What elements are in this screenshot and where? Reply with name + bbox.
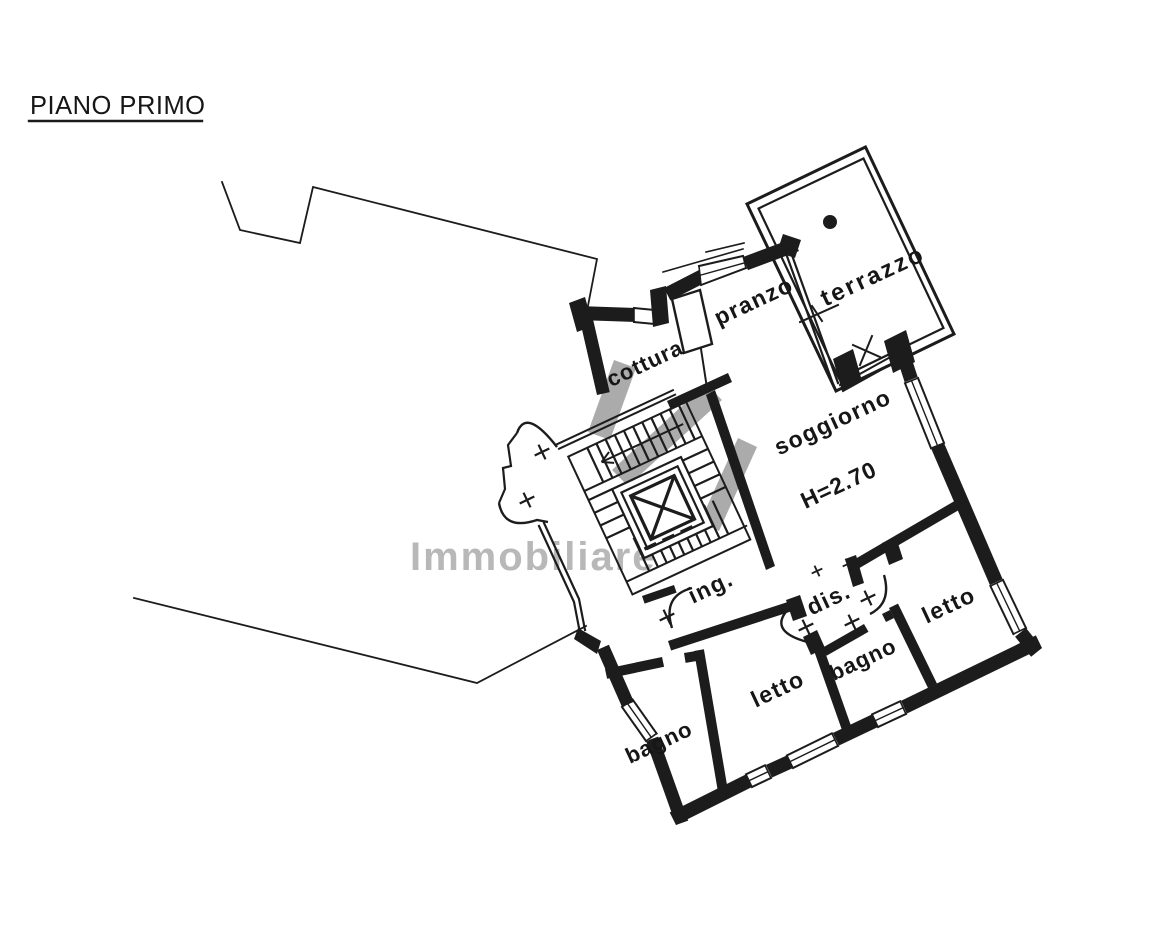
svg-text:pranzo: pranzo <box>710 271 797 330</box>
svg-text:soggiorno: soggiorno <box>770 383 895 460</box>
svg-text:H=2.70: H=2.70 <box>797 456 881 514</box>
svg-text:dis.: dis. <box>802 577 854 620</box>
svg-text:PIANO PRIMO: PIANO PRIMO <box>30 92 206 120</box>
svg-text:terrazzo: terrazzo <box>816 240 929 312</box>
svg-text:ing.: ing. <box>684 565 737 608</box>
svg-text:Immobiliare: Immobiliare <box>410 535 657 579</box>
svg-text:cottura: cottura <box>603 335 687 392</box>
svg-text:letto: letto <box>918 581 980 628</box>
svg-text:letto: letto <box>747 665 809 712</box>
